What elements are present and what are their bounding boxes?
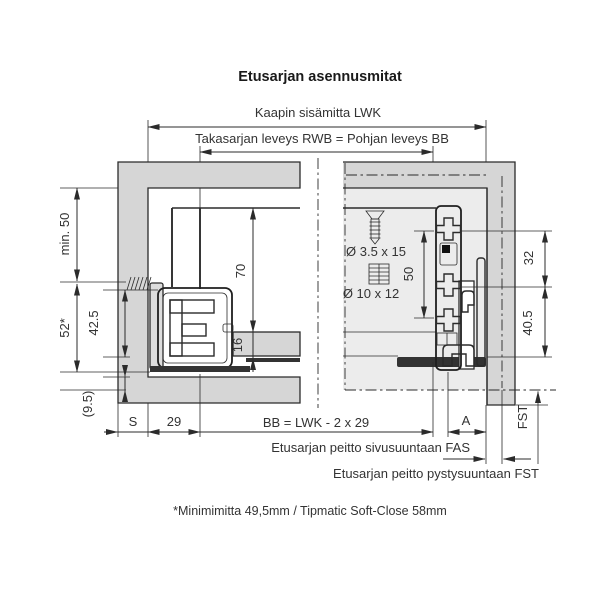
dim-label-cabinet-inner-width: Kaapin sisämitta LWK — [255, 105, 382, 120]
dim-label-dowel-size: Ø 10 x 12 — [343, 286, 399, 301]
adjuster-mark — [442, 245, 450, 253]
dim-label-29: 29 — [167, 414, 181, 429]
dim-label-screw-size: Ø 3.5 x 15 — [346, 244, 406, 259]
note-fas: Etusarjan peitto sivusuuntaan FAS — [271, 440, 470, 455]
footnote: *Minimimitta 49,5mm / Tipmatic Soft-Clos… — [173, 504, 447, 518]
dim-label-32: 32 — [521, 251, 536, 265]
rail-foot — [150, 366, 250, 372]
dim-label-back-width: Takasarjan leveys RWB = Pohjan leveys BB — [195, 131, 449, 146]
note-fst: Etusarjan peitto pystysuuntaan FST — [333, 466, 539, 481]
drawer-rail-section — [150, 283, 250, 372]
dim-label-70: 70 — [233, 264, 248, 278]
dim-label-40-5: 40.5 — [520, 310, 535, 335]
dim-label-50: 50 — [401, 267, 416, 281]
dim-label-16: 16 — [230, 338, 245, 352]
dim-label-a: A — [462, 413, 471, 428]
dim-label-bb-formula: BB = LWK - 2 x 29 — [263, 415, 369, 430]
side-section-view — [118, 162, 300, 403]
bottom-lip — [246, 358, 300, 362]
dim-label-9-5: (9.5) — [80, 391, 95, 418]
dim-label-s: S — [129, 414, 138, 429]
technical-drawing-page: Etusarjan asennusmitat Kaapin sisämitta … — [0, 0, 600, 600]
dim-label-52: 52* — [57, 318, 72, 338]
dim-label-min50: min. 50 — [57, 213, 72, 256]
dim-label-42-5: 42.5 — [86, 310, 101, 335]
dim-label-fst: FST — [515, 405, 530, 430]
cabinet-side-panel — [487, 162, 515, 405]
front-panel-installation-diagram: Etusarjan asennusmitat Kaapin sisämitta … — [0, 0, 600, 600]
front-view: Ø 3.5 x 15 Ø 10 x 12 — [343, 162, 556, 405]
diagram-title: Etusarjan asennusmitat — [238, 69, 402, 85]
